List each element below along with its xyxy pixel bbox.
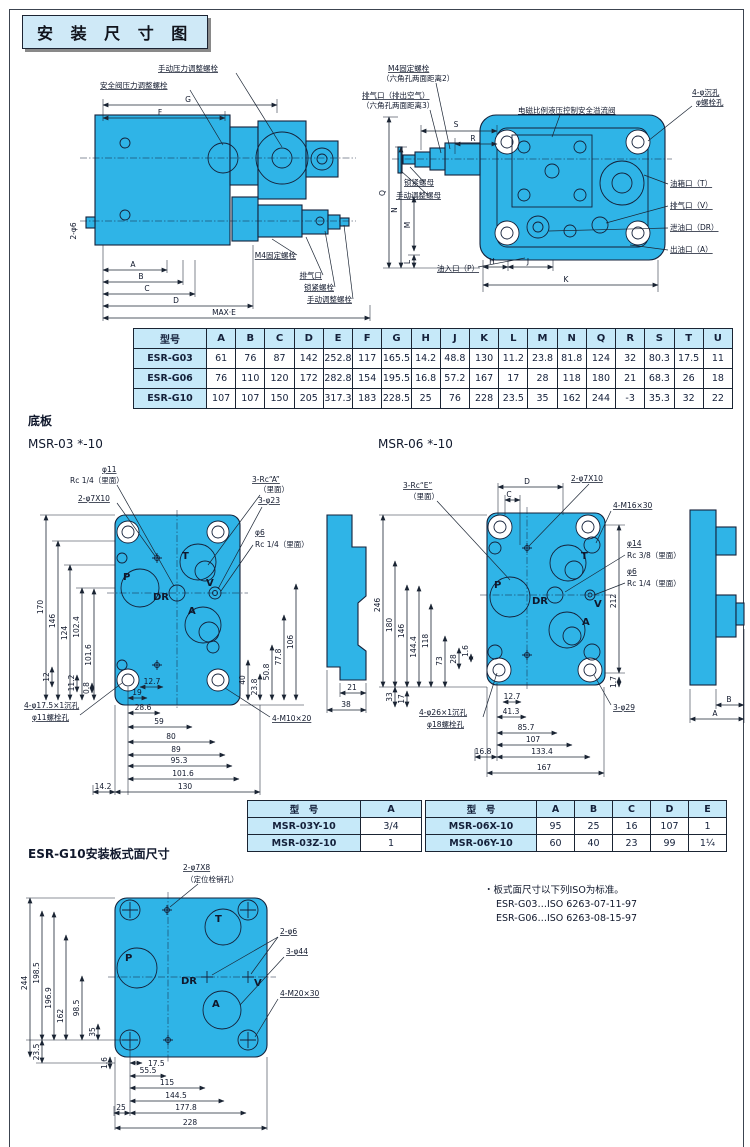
dim_table-header-1: A [207,329,236,349]
esrg10-dim-198-5: 198.5 [32,962,41,984]
msr03_table-cell-1-1: 1 [361,835,422,852]
msr03-dim-102-4: 102.4 [72,616,81,638]
dim_table-cell-2-5: 317.3 [323,389,352,409]
msr06-dim-167: 167 [537,763,552,772]
msr03-label-m10: 4-M10×20 [272,714,312,723]
msr06-dim-144-4: 144.4 [409,636,418,658]
label-manual-adjust-nut: 手动调整螺母 [396,190,441,200]
esrg10-dim-115: 115 [160,1078,175,1087]
dim_table-cell-1-13: 118 [557,369,586,389]
msr03-label-phi23: 3-φ23 [258,496,280,505]
dim-g: G [185,95,191,104]
label-lock-nut: 锁紧螺母 [404,177,434,187]
dim_table-cell-1-1: 76 [207,369,236,389]
msr03_table-header-0: 型 号 [248,801,361,818]
dim_table-header-2: B [236,329,265,349]
esrg10-dim-55-5: 55.5 [140,1066,157,1075]
msr06-dim-85-7: 85.7 [518,723,535,732]
msr06-port-v: V [594,599,602,610]
msr03-label-rca-note: （里面） [259,485,289,494]
msr03-dim-23-8: 23.8 [250,678,259,695]
iso-note-line2: ESR-G03…ISO 6263-07-11-97 [484,898,637,912]
msr06_table-cell-0-3: 16 [613,818,651,835]
dim_table-cell-2-16: 35.3 [645,389,674,409]
dim_table-cell-1-15: 21 [616,369,645,389]
msr06_table-cell-0-5: 1 [689,818,727,835]
msr03-dim-124: 124 [60,626,69,641]
label-counterbore: 4-φ沉孔 [692,88,720,97]
label-m4-bolt: M4固定螺栓 [255,250,297,260]
dim_table-cell-0-13: 81.8 [557,349,586,369]
msr06-label-m16: 4-M16×30 [613,501,653,510]
msr03-dim-14-2: 14.2 [95,782,112,791]
dim-a: A [130,260,136,269]
esrg10-label-phi6: 2-φ6 [280,927,297,936]
label-lock-bolt: 锁紧螺栓 [304,282,334,292]
msr06_table-cell-1-4: 99 [651,835,689,852]
dim_table-cell-2-12: 35 [528,389,557,409]
msr06_table-cell-0-1: 95 [537,818,575,835]
dim_table-header-16: S [645,329,674,349]
dim-f: F [158,108,162,117]
esrg10-dim-162: 162 [56,1009,65,1024]
dim_table-cell-0-15: 32 [616,349,645,369]
dim-k: K [564,275,570,284]
dim_table-header-4: D [294,329,323,349]
esrg10-dim-25: 25 [116,1103,126,1112]
esrg10-label-phi44: 3-φ44 [286,947,308,956]
msr03-dim-40: 40 [238,675,247,685]
msr03-dim-101-6: 101.6 [84,644,93,666]
msr03-dim-106: 106 [286,635,295,650]
msr06_table-cell-0-0: MSR-06X-10 [426,818,537,835]
esrg10-dim-1-6: 1.6 [100,1057,109,1069]
dim-h: H [489,257,495,266]
msr06_table-header-3: C [613,801,651,818]
msr06_table-header-1: A [537,801,575,818]
dim_table-cell-2-13: 162 [557,389,586,409]
msr06-label-rce-note: （里面） [409,492,439,501]
dim_table-header-10: K [469,329,498,349]
msr06_table-cell-1-2: 40 [575,835,613,852]
msr03-label-bolt-hole: φ11螺栓孔 [32,712,69,722]
dim_table-header-18: U [703,329,732,349]
esrg10-port-dr: DR [181,976,197,987]
dim_table-header-0: 型号 [134,329,207,349]
msr03_table-cell-0-1: 3/4 [361,818,422,835]
dim_table-cell-1-8: 16.8 [411,369,440,389]
label-bolt-hole: φ螺栓孔 [696,97,724,107]
heading-msr06: MSR-06 *-10 [378,437,453,451]
iso-note-line3: ESR-G06…ISO 6263-08-15-97 [484,912,637,926]
dim_table-cell-1-9: 57.2 [440,369,469,389]
msr06-dim-1-7: 1.7 [609,676,618,688]
dim_table-cell-0-2: 76 [236,349,265,369]
dim_table-header-11: L [499,329,528,349]
msr03-dim-19: 19 [132,688,142,697]
msr03-port-t: T [182,551,189,562]
msr03-table: 型 号AMSR-03Y-103/4MSR-03Z-101 [247,800,422,852]
msr03-dim-146: 146 [48,614,57,629]
dim_table-cell-2-17: 32 [674,389,703,409]
dim_table-cell-1-17: 26 [674,369,703,389]
msr03-dim-28-6: 28.6 [135,703,152,712]
msr03-port-p: P [123,572,130,583]
dim_table-cell-1-5: 282.8 [323,369,352,389]
dim_table-cell-1-18: 18 [703,369,732,389]
msr03_table-cell-1-0: MSR-03Z-10 [248,835,361,852]
dim_table-cell-1-12: 28 [528,369,557,389]
msr06-table: 型 号ABCDEMSR-06X-109525161071MSR-06Y-1060… [425,800,727,852]
msr06-dim-180: 180 [385,618,394,633]
label-drain-port: 泄油口（DR） [670,222,719,232]
msr03-dim-89: 89 [171,745,181,754]
msr06-dim-133-4: 133.4 [531,747,553,756]
msr06_table-cell-1-1: 60 [537,835,575,852]
msr06-dim-28: 28 [449,654,458,664]
esrg10-port-a: A [212,999,220,1010]
msr06_table-row-0: MSR-06X-109525161071 [426,818,727,835]
dim_table-cell-0-17: 17.5 [674,349,703,369]
esrg10-dim-228: 228 [183,1118,198,1127]
msr06-side-dim-a: A [712,709,718,718]
dim_table-cell-1-14: 180 [586,369,615,389]
msr06_table-cell-0-2: 25 [575,818,613,835]
dim_table-cell-0-4: 142 [294,349,323,369]
dim_table-cell-0-6: 117 [353,349,382,369]
dim_table-cell-2-0: ESR-G10 [134,389,207,409]
msr06-plate: T P DR V A [480,507,615,691]
msr03-dim-59: 59 [154,717,164,726]
dim-b: B [138,272,143,281]
dim_table-header-7: G [382,329,411,349]
dim_table-cell-0-8: 14.2 [411,349,440,369]
label-air-vent: 排气口 [300,270,323,280]
msr06-port-p: P [494,580,501,591]
msr06-dim-146: 146 [397,624,406,639]
dim_table-cell-0-14: 124 [586,349,615,369]
msr03-label-phi7x10: 2-φ7X10 [78,494,110,503]
dim_table-row-1: ESR-G0676110120172282.8154195.516.857.21… [134,369,733,389]
dim_table-cell-0-5: 252.8 [323,349,352,369]
msr06_table-header-0: 型 号 [426,801,537,818]
page-title: 安 装 尺 寸 图 [22,15,208,49]
dim_table-header-5: E [323,329,352,349]
heading-msr03: MSR-03 *-10 [28,437,103,451]
dim_table-header-14: Q [586,329,615,349]
section-base-plate: 底板 [28,412,52,429]
label-vent-port: 排气口（V） [670,200,713,210]
catalog-page: 安 装 尺 寸 图 [0,0,750,1147]
dim_table-cell-1-0: ESR-G06 [134,369,207,389]
dim-d: D [173,296,179,305]
msr06-side-dim-b: B [726,695,731,704]
msr03-port-dr: DR [153,592,169,603]
msr03-dim-80: 80 [166,732,176,741]
msr06-label-bolt-hole: φ18螺栓孔 [427,719,464,729]
esrg10-label-m20: 4-M20×30 [280,989,320,998]
msr06-dim-12-7: 12.7 [504,692,521,701]
msr06-plate-drawing: T P DR V A D C 3-Rc“E” （里面） 2-φ7X10 4-M1… [375,455,748,800]
pump-side-view-body [80,115,356,245]
msr06-port-a: A [582,617,590,628]
msr03-dim-77-8: 77.8 [274,648,283,665]
msr06_table-cell-1-3: 23 [613,835,651,852]
msr03-label-phi11: φ11 [102,465,117,474]
msr06_table-header-2: B [575,801,613,818]
msr06-dim-212: 212 [609,594,618,609]
msr03-label-rca: 3-Rc“A” [252,475,280,484]
msr03-label-phi6: φ6 [255,528,265,537]
dim_table-cell-0-1: 61 [207,349,236,369]
msr03-dim-12: 12 [42,672,51,682]
pump-outline-drawing: G F 手动压力调整螺栓 安全阀压力调整螺栓 2-φ6 A B C D MAX·… [0,55,750,330]
label-safety-valve-bolt: 安全阀压力调整螺栓 [100,80,168,90]
dim_table-row-0: ESR-G03617687142252.8117165.514.248.8130… [134,349,733,369]
esrg10-port-p: P [125,953,132,964]
dim_table-header-8: H [411,329,440,349]
esrg10-dim-35: 35 [88,1027,97,1037]
msr03_table-row-0: MSR-03Y-103/4 [248,818,422,835]
msr06-dim-16-8: 16.8 [475,747,492,756]
dim_table-cell-1-7: 195.5 [382,369,411,389]
msr03-label-rc14-top: Rc 1/4（里面） [70,476,124,485]
msr06-label-rc38: Rc 3/8（里面） [627,551,681,560]
dim_table-cell-2-4: 205 [294,389,323,409]
msr03-side-view: 21 38 [327,515,366,713]
msr06-label-phi29: 3-φ29 [613,703,635,712]
dim_table-cell-0-11: 11.2 [499,349,528,369]
msr03-port-a: A [188,606,196,617]
msr06-dim-73: 73 [435,656,444,666]
msr03-dim-0-8: 0.8 [82,682,91,694]
label-tank-port: 油箱口（T） [670,178,712,188]
label-outlet-port: 出油口（A） [670,244,713,254]
dim-m: M [403,222,412,228]
dim_table-cell-2-7: 228.5 [382,389,411,409]
msr03-side-dim-38: 38 [341,700,351,709]
msr06-dim-107: 107 [526,735,541,744]
dim-2phi6: 2-φ6 [69,222,78,239]
esrg10-label-pin: 2-φ7X8 [183,863,210,872]
dim-r: R [470,134,475,143]
dim-n: N [390,207,399,213]
dim-q: Q [378,190,387,196]
dim_table-cell-1-2: 110 [236,369,265,389]
iso-note-line1: ・板式面尺寸以下列ISO为标准。 [484,884,637,898]
msr06-label-rc14: Rc 1/4（里面） [627,579,681,588]
dim_table-header-9: J [440,329,469,349]
dim_table-cell-0-10: 130 [469,349,498,369]
msr06_table-cell-1-0: MSR-06Y-10 [426,835,537,852]
msr06-dim-118: 118 [421,634,430,649]
esrg10-plate-drawing: T P DR V A 2-φ7X8 （定位栓销孔） 2-φ6 3-φ44 4-M… [18,858,370,1147]
dim_table-cell-0-16: 80.3 [645,349,674,369]
dim_table-cell-1-6: 154 [353,369,382,389]
label-m4-bolt-note: （六角孔两面距离2） [382,73,454,83]
msr03_table-cell-0-0: MSR-03Y-10 [248,818,361,835]
dim_table-cell-2-3: 150 [265,389,294,409]
dim-l: L [403,259,412,264]
esrg10-port-t: T [215,914,222,925]
dim_table-header-12: M [528,329,557,349]
msr03-dim-170: 170 [36,600,45,615]
dim_table-cell-1-11: 17 [499,369,528,389]
esrg10-plate: T P DR V A [108,892,276,1063]
msr06_table-header-5: E [689,801,727,818]
dim_table-header-6: F [353,329,382,349]
dimension-table: 型号ABCDEFGHJKLMNQRSTUESR-G03617687142252.… [133,328,733,409]
msr06-dim-d: D [524,477,530,486]
msr06_table-row-1: MSR-06Y-10604023991¼ [426,835,727,852]
msr03-dim-95-3: 95.3 [171,756,188,765]
dim_table-header-15: R [616,329,645,349]
esrg10-dim-23-5: 23.5 [32,1043,41,1060]
esrg10-dim-177-8: 177.8 [175,1103,197,1112]
dim_table-cell-0-18: 11 [703,349,732,369]
dim_table-header-3: C [265,329,294,349]
dim_table-cell-0-9: 48.8 [440,349,469,369]
msr03-dim-101-6b: 101.6 [172,769,194,778]
msr06-label-phi14: φ14 [627,539,642,548]
dim_table-header-17: T [674,329,703,349]
msr03-label-counterbore: 4-φ17.5×1沉孔 [24,701,80,710]
msr06_table-header-4: D [651,801,689,818]
msr03-port-v: V [206,578,214,589]
esrg10-dim-144-5: 144.5 [165,1091,187,1100]
iso-note: ・板式面尺寸以下列ISO为标准。 ESR-G03…ISO 6263-07-11-… [484,884,637,925]
dim_table-row-2: ESR-G10107107150205317.3183228.525762282… [134,389,733,409]
msr03-plate-drawing: T P DR V A φ11 Rc 1/4（里面） 2-φ7X10 3-Rc“A… [22,455,372,800]
dim_table-cell-2-8: 25 [411,389,440,409]
label-manual-adjust-bolt: 手动调整螺栓 [307,294,352,304]
msr06_table-cell-1-5: 1¼ [689,835,727,852]
dim_table-cell-2-1: 107 [207,389,236,409]
dim-s: S [454,120,459,129]
esrg10-dim-196-9: 196.9 [44,987,53,1009]
label-proportional-valve: 电磁比例液压控制安全溢流阀 [518,105,616,115]
label-manual-pressure-bolt: 手动压力调整螺栓 [158,63,218,73]
dim_table-cell-2-14: 244 [586,389,615,409]
msr03-label-rc14-right: Rc 1/4（里面） [255,540,309,549]
dim_table-cell-0-12: 23.8 [528,349,557,369]
msr06-dim-41-3: 41.3 [503,707,520,716]
dim-j: J [526,257,529,266]
msr06-dim-33: 33 [385,692,394,702]
dim-max-e: MAX·E [212,308,236,317]
label-air-vent-note: （六角孔两面距离3） [362,100,434,110]
esrg10-label-pin-note: （定位栓销孔） [186,874,239,884]
msr06_table-cell-0-4: 107 [651,818,689,835]
esrg10-port-v: V [254,978,262,989]
dim_table-cell-1-10: 167 [469,369,498,389]
msr06-dim-17: 17 [397,694,406,704]
esrg10-dim-98-5: 98.5 [72,999,81,1016]
label-m4-bolt-top: M4固定螺栓 [388,63,430,73]
dim_table-cell-2-15: -3 [616,389,645,409]
msr03-side-dim-21: 21 [347,683,357,692]
dim_table-cell-2-9: 76 [440,389,469,409]
msr03-dim-11-2: 11.2 [67,674,76,691]
dim_table-cell-0-7: 165.5 [382,349,411,369]
msr06-label-phi7x10: 2-φ7X10 [571,474,603,483]
dim_table-cell-2-2: 107 [236,389,265,409]
dim_table-header-13: N [557,329,586,349]
dim_table-cell-2-18: 22 [703,389,732,409]
msr03-dim-130: 130 [178,782,193,791]
msr06-label-rce: 3-Rc“E” [403,481,432,490]
msr06-label-counterbore: 4-φ26×1沉孔 [419,708,468,717]
dim_table-cell-1-16: 68.3 [645,369,674,389]
label-inlet-port: 油入口（P） [437,263,479,273]
label-air-vent-top: 排气口（排出空气） [362,90,430,100]
msr03_table-row-1: MSR-03Z-101 [248,835,422,852]
msr03-dim-12-7: 12.7 [144,677,161,686]
msr03_table-header-1: A [361,801,422,818]
dim_table-cell-2-6: 183 [353,389,382,409]
msr06-side-view: B A [690,510,744,723]
dim_table-cell-2-10: 228 [469,389,498,409]
dim_table-cell-1-3: 120 [265,369,294,389]
msr03-dim-50-8: 50.8 [262,663,271,680]
dim_table-cell-1-4: 172 [294,369,323,389]
esrg10-dim-244: 244 [20,976,29,991]
msr06-label-phi6: φ6 [627,567,637,576]
msr06-dim-c: C [506,490,511,499]
msr06-dim-246: 246 [373,598,382,613]
dim-c: C [144,284,149,293]
msr06-port-dr: DR [532,596,548,607]
dim_table-cell-0-0: ESR-G03 [134,349,207,369]
msr06-dim-1-6: 1.6 [461,645,470,657]
pump-top-view-body [392,115,672,260]
dim_table-cell-0-3: 87 [265,349,294,369]
dim_table-cell-2-11: 23.5 [499,389,528,409]
msr06-port-t: T [581,551,588,562]
